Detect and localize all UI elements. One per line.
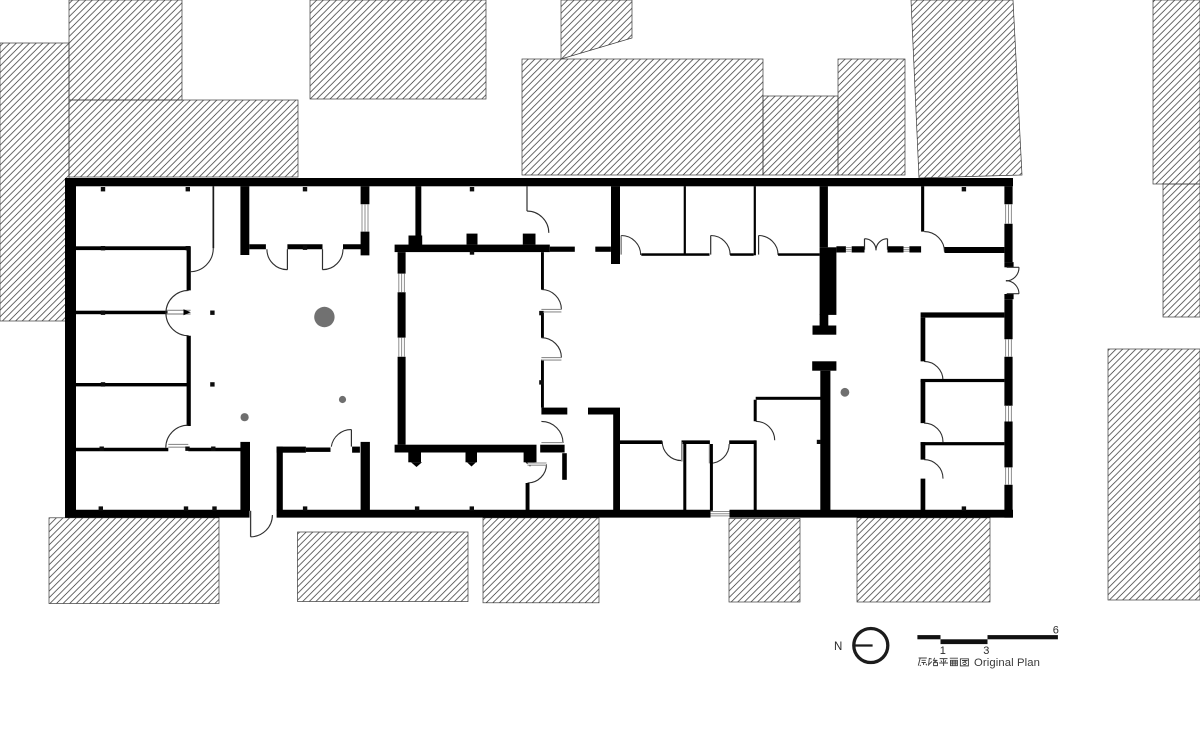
svg-text:3: 3 xyxy=(983,645,989,657)
svg-text:6: 6 xyxy=(1053,624,1059,636)
svg-text:1: 1 xyxy=(940,645,946,657)
svg-text:Original Plan: Original Plan xyxy=(974,657,1040,669)
svg-text:N: N xyxy=(834,641,842,653)
